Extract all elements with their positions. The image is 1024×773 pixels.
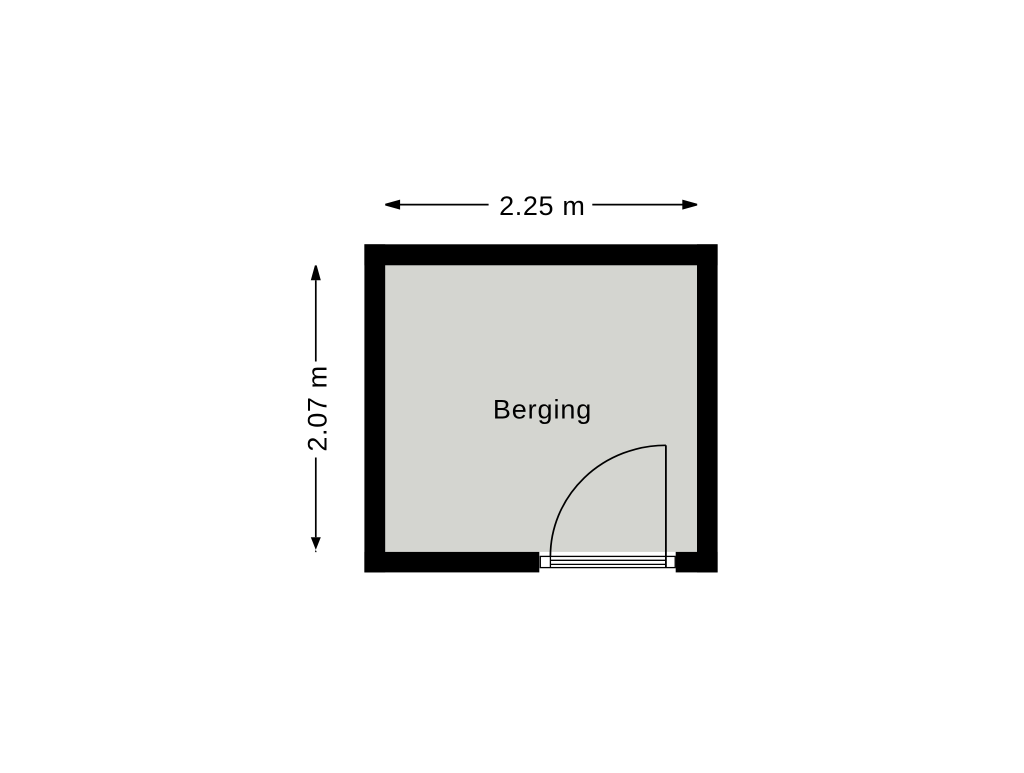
svg-text:2.07 m: 2.07 m xyxy=(303,365,333,451)
svg-text:Berging: Berging xyxy=(493,394,592,424)
svg-text:2.25 m: 2.25 m xyxy=(499,191,585,221)
